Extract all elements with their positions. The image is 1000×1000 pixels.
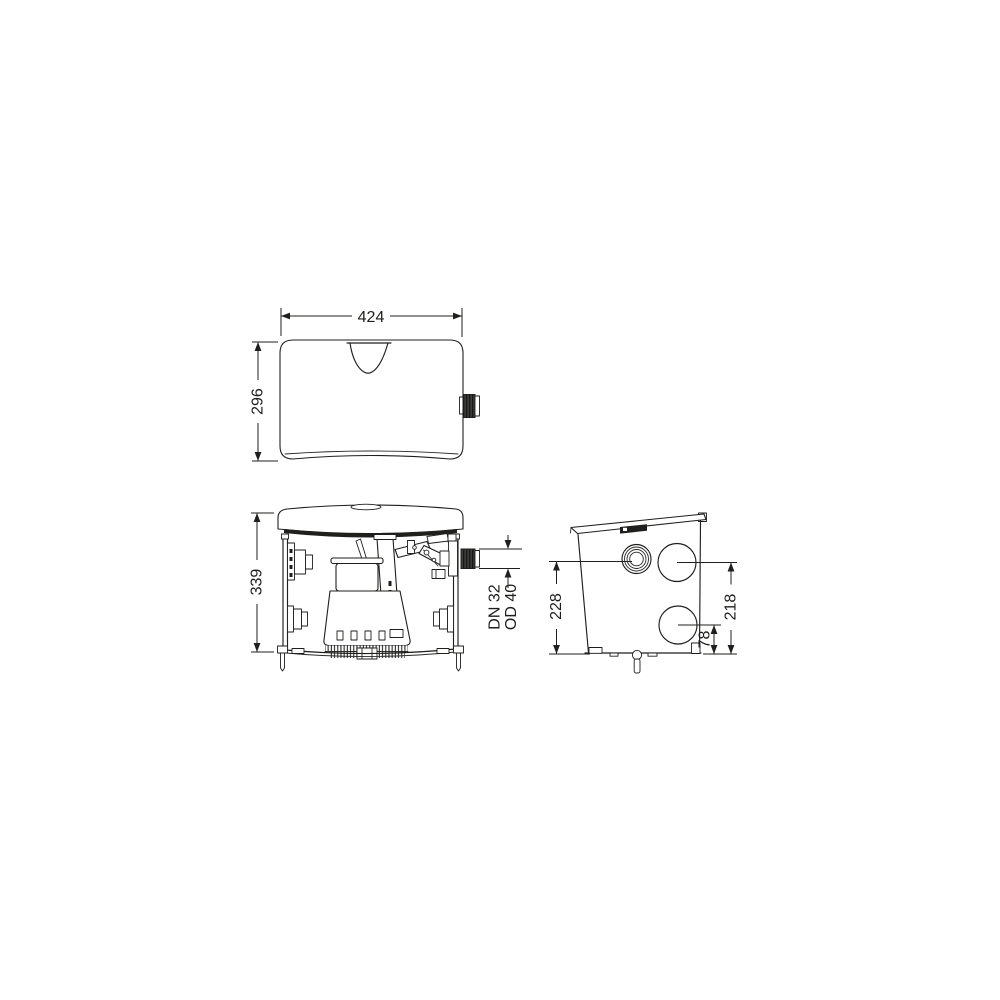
dim-228-label: 228: [548, 593, 565, 620]
arrowhead-right: [453, 313, 462, 320]
arrowhead-left: [281, 313, 290, 320]
arrowhead-up: [505, 569, 512, 578]
outlet-thread-front: [461, 549, 475, 569]
dimension-top-width: 424: [281, 308, 462, 337]
outlet-connector-front: [440, 541, 480, 576]
left-upper-port: [288, 543, 313, 580]
dimension-front-height: 339: [249, 513, 274, 652]
foot-right: [454, 646, 464, 653]
cable-gland: [632, 650, 641, 659]
type-label-mark: [623, 528, 627, 531]
outlet-label-dn: DN 32: [487, 584, 504, 629]
top-view-body-outline: [280, 340, 463, 459]
lid-handle-recess-edge: [351, 504, 381, 510]
dim-78-label: 78: [697, 631, 714, 649]
tank-left-wall: [283, 534, 288, 652]
side-foot-left: [589, 648, 602, 654]
foot-left: [278, 646, 288, 653]
side-view: [571, 513, 707, 673]
arrowhead-up: [254, 513, 261, 522]
arrowhead-up: [553, 562, 560, 571]
outlet-cap-front: [475, 551, 480, 568]
inspection-cap: [622, 545, 651, 574]
dim-424-label: 424: [358, 309, 385, 326]
right-lower-port: [434, 606, 454, 632]
arrowhead-down: [728, 645, 735, 654]
dim-218-label: 218: [723, 594, 740, 621]
top-view: [280, 340, 480, 459]
outlet-cap-top-view: [475, 396, 480, 416]
arrowhead-down: [553, 645, 560, 654]
side-body-outline: [578, 521, 701, 653]
left-lower-port: [288, 606, 308, 632]
dim-339-label: 339: [249, 569, 266, 596]
cable-stem: [634, 659, 640, 673]
dim-296-label: 296: [250, 388, 267, 415]
arrowhead-up: [255, 342, 262, 351]
pump-station-dimension-drawing: 424 296: [0, 0, 1000, 1000]
arrowhead-down: [255, 452, 262, 461]
front-view: [278, 504, 480, 671]
dimension-top-depth: 296: [250, 342, 278, 461]
extension-line: [479, 549, 522, 569]
drawing-canvas: 424 296: [0, 0, 1000, 1000]
arrowhead-up: [728, 563, 735, 572]
dimension-side-cap-height: 228: [548, 562, 632, 655]
outlet-stub-top-view: [460, 397, 464, 414]
dimension-outlet-diameter: DN 32 OD 40: [479, 535, 522, 630]
outlet-thread-top-view: [463, 395, 475, 418]
lid-clip-left: [282, 534, 289, 539]
arrowhead-down: [505, 540, 512, 549]
outlet-label-od: OD 40: [503, 584, 520, 630]
arrowhead-down: [254, 643, 261, 652]
